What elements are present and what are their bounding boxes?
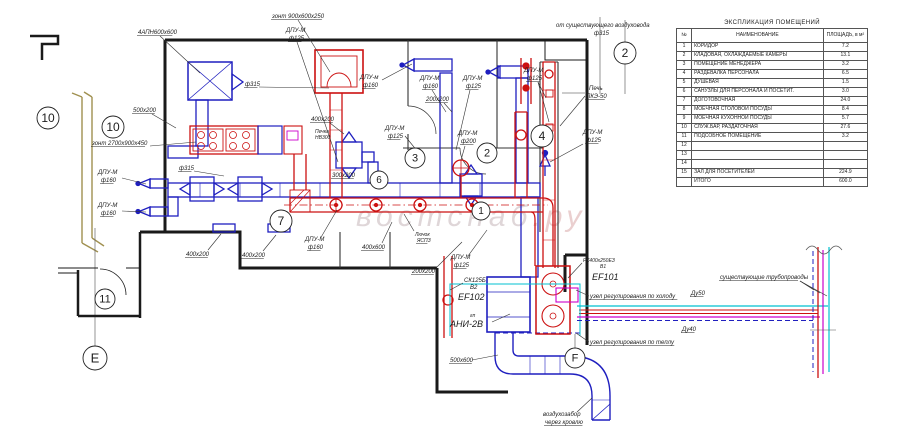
svg-text:АНИ-2В: АНИ-2В (449, 319, 483, 329)
room-name: КЛАДОВАЯ, ОХЛАЖДАЕМЫЕ КАМЕРЫ (692, 52, 824, 61)
plan-label: ДПУ-М (285, 28, 305, 34)
row-number: 5 (677, 79, 692, 88)
row-number: 11 (677, 133, 692, 142)
row-number: 4 (677, 70, 692, 79)
heater-rk (556, 288, 578, 302)
room-name (692, 151, 824, 160)
plan-label: ф125 (526, 76, 549, 122)
svg-text:400х200: 400х200 (186, 252, 210, 258)
svg-text:ф160: ф160 (423, 84, 439, 90)
svg-text:ф125: ф125 (388, 134, 404, 140)
plan-label: АНИ-2В (449, 314, 510, 329)
plan-label: ф315 (594, 31, 610, 37)
svg-text:РК400х250ЕЗ: РК400х250ЕЗ (583, 258, 615, 264)
row-number: 13 (677, 151, 692, 160)
plan-label: ф315 (178, 166, 224, 176)
table-row: 8МОЕЧНАЯ СТОЛОВОЙ ПОСУДЫ8.4 (677, 106, 868, 115)
svg-text:ф125: ф125 (466, 84, 482, 90)
room-area: 3.2 (823, 61, 867, 70)
position-marker: 1 (472, 202, 490, 220)
room-name: САНУЗЛЫ ДЛЯ ПЕРСОНАЛА И ПОСЕТИТ. (692, 88, 824, 97)
room-name (692, 142, 824, 151)
plan-label: 500х200 (132, 108, 176, 128)
plan-label: ДПУ-М (97, 203, 117, 209)
table-row: 7ДОГОТОВОЧНАЯ24.0 (677, 97, 868, 106)
row-number (677, 178, 692, 187)
row-number: 2 (677, 52, 692, 61)
svg-text:EF102: EF102 (458, 292, 485, 302)
hvac-plan-sheet: востснаб.ру (0, 0, 900, 433)
row-number: 10 (677, 124, 692, 133)
svg-text:400х200: 400х200 (311, 117, 335, 123)
svg-text:воздухозабор: воздухозабор (543, 412, 581, 418)
plan-label: от существующего воздуховода (556, 23, 650, 29)
row-number: 7 (677, 97, 692, 106)
svg-text:500х200: 500х200 (133, 108, 157, 114)
position-marker: 2 (614, 42, 636, 64)
room-area: 1.5 (823, 79, 867, 88)
plan-label: Ду40 (681, 327, 697, 333)
svg-text:узел регулирования по холоду: узел регулирования по холоду (589, 294, 676, 300)
svg-text:ДПУ-м: ДПУ-м (359, 75, 379, 81)
svg-text:ф160: ф160 (101, 178, 117, 184)
row-number: 1 (677, 43, 692, 52)
room-name: ДУШЕВАЯ (692, 79, 824, 88)
room-name: КОРИДОР (692, 43, 824, 52)
svg-text:ф160: ф160 (308, 245, 324, 251)
table-title: ЭКСПЛИКАЦИЯ ПОМЕЩЕНИЙ (676, 20, 868, 26)
room-area: 8.4 (823, 106, 867, 115)
col-number: № (677, 29, 692, 43)
svg-text:4АПН600х600: 4АПН600х600 (138, 30, 178, 36)
table-row: 11ПОДСОБНОЕ ПОМЕЩЕНИЕ3.2 (677, 133, 868, 142)
position-marker: 3 (405, 148, 425, 168)
svg-text:ДПУ-М: ДПУ-М (582, 130, 602, 136)
plan-label: В1 (600, 264, 606, 270)
position-marker: F (565, 348, 585, 368)
kitchen-equipment-row (190, 126, 302, 154)
table-row: 5ДУШЕВАЯ1.5 (677, 79, 868, 88)
plan-label: НВ300 (315, 135, 331, 141)
svg-text:10: 10 (106, 120, 120, 134)
position-marker: 10 (102, 116, 124, 138)
table-row: 4РАЗДЕВАЛКА ПЕРСОНАЛА6.5 (677, 70, 868, 79)
plan-label: Ду50 (690, 291, 706, 297)
table-row: ИТОГО600.0 (677, 178, 868, 187)
svg-text:существующие трубопроводы: существующие трубопроводы (720, 275, 809, 281)
svg-text:В2: В2 (470, 285, 478, 291)
svg-text:2: 2 (622, 46, 629, 60)
svg-text:зонт 900х600х250: зонт 900х600х250 (271, 14, 325, 20)
svg-text:НВ300: НВ300 (315, 135, 331, 141)
plan-label: 4АПН600х600 (137, 30, 200, 73)
plan-label: ф200 (460, 139, 477, 160)
position-marker: E (83, 346, 107, 370)
plan-label: EF102 (458, 292, 485, 302)
svg-text:ф315: ф315 (245, 82, 261, 88)
existing-risers (806, 246, 842, 378)
plan-label: ДПУ-М (450, 255, 470, 261)
room-name: МОЕЧНАЯ СТОЛОВОЙ ПОСУДЫ (692, 106, 824, 115)
position-marker: 11 (95, 289, 115, 309)
table-row: 12 (677, 142, 868, 151)
room-name: ПОДСОБНОЕ ПОМЕЩЕНИЕ (692, 133, 824, 142)
plan-label: ДПУ-М (457, 131, 477, 137)
room-area (823, 160, 867, 169)
room-name: ИТОГО (692, 178, 824, 187)
svg-text:ф125: ф125 (289, 36, 305, 42)
svg-text:ДПУ-М: ДПУ-М (457, 131, 477, 137)
svg-text:через кровлю: через кровлю (545, 420, 583, 426)
plan-label: ПКЭ-50 (560, 93, 607, 126)
room-area: 224.9 (823, 169, 867, 178)
room-area: 3.0 (823, 88, 867, 97)
svg-text:ДПУ-М: ДПУ-М (450, 255, 470, 261)
room-area: 5.7 (823, 115, 867, 124)
plan-label: Печь (589, 86, 603, 92)
svg-text:ф125: ф125 (454, 263, 470, 269)
explication-table: ЭКСПЛИКАЦИЯ ПОМЕЩЕНИЙ № НАИМЕНОВАНИЕ ПЛО… (676, 20, 868, 187)
plan-label: узел регулирования по теплу (576, 333, 675, 346)
room-area: 24.0 (823, 97, 867, 106)
svg-text:В1: В1 (600, 264, 606, 270)
table-row: 1КОРИДОР7.2 (677, 43, 868, 52)
svg-text:ДПУ-М: ДПУ-М (462, 76, 482, 82)
room-area: 13.1 (823, 52, 867, 61)
svg-text:7: 7 (278, 214, 285, 228)
position-marker: 4 (531, 125, 553, 147)
svg-text:ДПУ-М: ДПУ-М (523, 68, 543, 74)
svg-text:ДПУ-М: ДПУ-М (384, 126, 404, 132)
svg-text:3: 3 (412, 153, 418, 165)
table-row: 3ПОМЕЩЕНИЕ МЕНЕДЖЕРА3.2 (677, 61, 868, 70)
room-area: 27.6 (823, 124, 867, 133)
position-marker: 2 (477, 143, 497, 163)
svg-text:узел регулирования по теплу: узел регулирования по теплу (589, 340, 675, 346)
svg-text:ЯСПЗ: ЯСПЗ (416, 238, 431, 244)
row-number: 12 (677, 142, 692, 151)
room-name: ДОГОТОВОЧНАЯ (692, 97, 824, 106)
plan-label: 400х200 (185, 234, 221, 258)
svg-text:4: 4 (539, 129, 546, 143)
room-name: СЛУЖ.БАР, РАЗДАТОЧНАЯ (692, 124, 824, 133)
svg-text:400х600: 400х600 (362, 245, 386, 251)
svg-text:Ду40: Ду40 (681, 327, 697, 333)
plan-label: ф125 (453, 230, 487, 269)
plan-label: ДПУ-М (419, 76, 439, 82)
table-row: 13 (677, 151, 868, 160)
table-row: 9МОЕЧНАЯ КУХОННОЙ ПОСУДЫ5.7 (677, 115, 868, 124)
plan-label: ДПУ-М (97, 170, 117, 176)
plan-label: В2 (470, 285, 478, 291)
svg-text:ДПУ-М: ДПУ-М (304, 237, 324, 243)
svg-text:200х200: 200х200 (425, 97, 450, 103)
plan-label: 500х600 (449, 355, 498, 364)
room-area: 6.5 (823, 70, 867, 79)
svg-text:ф315: ф315 (179, 166, 195, 172)
svg-text:ДПУ-М: ДПУ-М (419, 76, 439, 82)
room-name (692, 160, 824, 169)
table-row: 10СЛУЖ.БАР, РАЗДАТОЧНАЯ27.6 (677, 124, 868, 133)
room-area (823, 151, 867, 160)
position-marker: 6 (370, 171, 388, 189)
plan-label: 200х200 (425, 97, 452, 112)
row-number: 14 (677, 160, 692, 169)
room-area: 7.2 (823, 43, 867, 52)
svg-text:СК125Б: СК125Б (464, 278, 486, 284)
table-row: 2КЛАДОВАЯ, ОХЛАЖДАЕМЫЕ КАМЕРЫ13.1 (677, 52, 868, 61)
row-number: 8 (677, 106, 692, 115)
plan-label: 400х200 (241, 235, 276, 259)
svg-text:2: 2 (484, 148, 490, 160)
svg-text:11: 11 (99, 294, 110, 306)
table-header-row: № НАИМЕНОВАНИЕ ПЛОЩАДЬ, в м² (677, 29, 868, 43)
plan-label: ДПУ-М (384, 126, 404, 132)
plan-label: 300х200 (331, 173, 356, 179)
row-number: 15 (677, 169, 692, 178)
svg-text:300х200: 300х200 (332, 173, 356, 179)
plan-label: ДПУ-М (523, 68, 543, 74)
plan-label: существующие трубопроводы (719, 275, 827, 296)
room-area: 600.0 (823, 178, 867, 187)
table-row: 15ЗАЛ ДЛЯ ПОСЕТИТЕЛЕЙ224.9 (677, 169, 868, 178)
svg-text:от существующего воздуховода: от существующего воздуховода (556, 23, 650, 29)
plan-label: ф315 (244, 82, 329, 88)
svg-text:ДПУ-М: ДПУ-М (97, 203, 117, 209)
svg-text:500х600: 500х600 (450, 358, 474, 364)
svg-text:ф125: ф125 (586, 138, 602, 144)
room-name: РАЗДЕВАЛКА ПЕРСОНАЛА (692, 70, 824, 79)
svg-text:ф160: ф160 (101, 211, 117, 217)
plan-label: ДПУ-М (462, 76, 482, 82)
plan-label: EF101 (592, 272, 619, 282)
svg-text:E: E (91, 350, 100, 365)
room-name: ПОМЕЩЕНИЕ МЕНЕДЖЕРА (692, 61, 824, 70)
svg-text:ф125: ф125 (527, 76, 543, 82)
col-area: ПЛОЩАДЬ, в м² (823, 29, 867, 43)
svg-text:ф160: ф160 (363, 83, 379, 89)
room-name: МОЕЧНАЯ КУХОННОЙ ПОСУДЫ (692, 115, 824, 124)
table-row: 6САНУЗЛЫ ДЛЯ ПЕРСОНАЛА И ПОСЕТИТ.3.0 (677, 88, 868, 97)
svg-text:ф315: ф315 (594, 31, 610, 37)
plan-label: ДПУ-М (304, 237, 324, 243)
svg-text:400х200: 400х200 (242, 253, 266, 259)
ani-2v-unit (487, 277, 530, 332)
svg-text:F: F (572, 353, 579, 365)
table-row: 14 (677, 160, 868, 169)
svg-text:200х200: 200х200 (411, 269, 436, 275)
plan-label: ф160 (307, 210, 337, 251)
svg-text:EF101: EF101 (592, 272, 619, 282)
svg-text:ДПУ-М: ДПУ-М (97, 170, 117, 176)
plan-label: ф160 (100, 211, 146, 217)
svg-text:Ду50: Ду50 (690, 291, 706, 297)
svg-text:10: 10 (41, 111, 55, 125)
room-name: ЗАЛ ДЛЯ ПОСЕТИТЕЛЕЙ (692, 169, 824, 178)
svg-text:6: 6 (376, 175, 382, 186)
svg-text:Печь: Печь (589, 86, 603, 92)
svg-text:ДПУ-М: ДПУ-М (285, 28, 305, 34)
plan-label: ДПУ-м (359, 75, 379, 81)
row-number: 6 (677, 88, 692, 97)
row-number: 3 (677, 61, 692, 70)
svg-text:1: 1 (478, 206, 484, 217)
plan-label: ДПУ-М (582, 130, 602, 136)
svg-text:ф200: ф200 (461, 139, 477, 145)
plan-label: воздухозабор (543, 412, 581, 418)
plan-label: узел регулирования по холоду (576, 290, 677, 300)
svg-text:ПКЭ-50: ПКЭ-50 (586, 94, 607, 100)
svg-text:зонт 2700х900х450: зонт 2700х900х450 (91, 141, 148, 147)
supply-ducts (136, 59, 610, 420)
position-marker: 7 (270, 210, 292, 232)
position-marker: 10 (37, 107, 59, 129)
room-area: 3.2 (823, 133, 867, 142)
room-area (823, 142, 867, 151)
row-number: 9 (677, 115, 692, 124)
col-name: НАИМЕНОВАНИЕ (692, 29, 824, 43)
pipes (450, 246, 842, 378)
